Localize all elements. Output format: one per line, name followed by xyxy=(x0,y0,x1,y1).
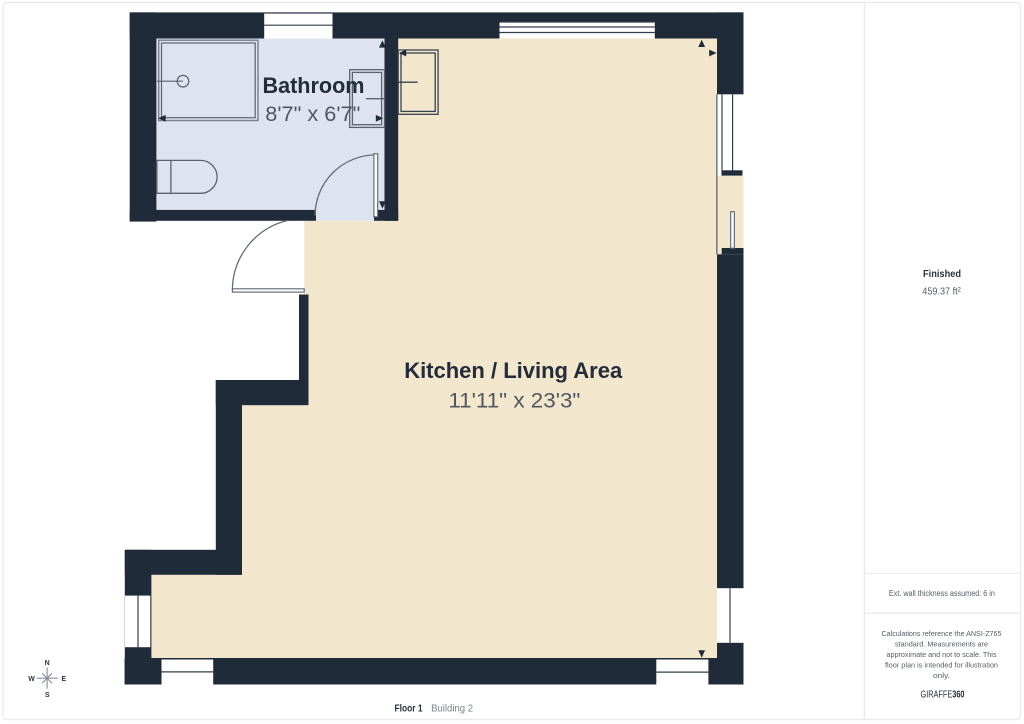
svg-text:Floor 1: Floor 1 xyxy=(395,702,423,714)
svg-text:N: N xyxy=(45,660,50,667)
svg-text:11'11" x 23'3": 11'11" x 23'3" xyxy=(448,388,580,412)
svg-text:approximate and not to scale.: approximate and not to scale. This xyxy=(887,650,997,659)
svg-text:E: E xyxy=(61,676,66,683)
svg-text:Ext. wall thickness assumed: 6: Ext. wall thickness assumed: 6 in xyxy=(889,589,995,598)
svg-text:floor plan is intended for ill: floor plan is intended for illustration xyxy=(885,660,998,669)
svg-text:Finished: Finished xyxy=(923,268,961,280)
svg-text:only.: only. xyxy=(933,671,950,680)
svg-text:W: W xyxy=(28,676,35,683)
svg-text:Building 2: Building 2 xyxy=(431,702,473,714)
svg-text:8'7" x 6'7": 8'7" x 6'7" xyxy=(265,103,360,126)
svg-text:Bathroom: Bathroom xyxy=(263,73,365,98)
svg-text:459.37 ft²: 459.37 ft² xyxy=(922,286,961,298)
svg-text:Calculations reference the ANS: Calculations reference the ANSI-Z765 xyxy=(882,629,1002,638)
svg-text:standard. Measurements are: standard. Measurements are xyxy=(895,640,988,649)
svg-text:GIRAFFE360: GIRAFFE360 xyxy=(921,689,965,700)
svg-text:S: S xyxy=(45,692,50,699)
svg-text:Kitchen / Living Area: Kitchen / Living Area xyxy=(404,358,623,383)
